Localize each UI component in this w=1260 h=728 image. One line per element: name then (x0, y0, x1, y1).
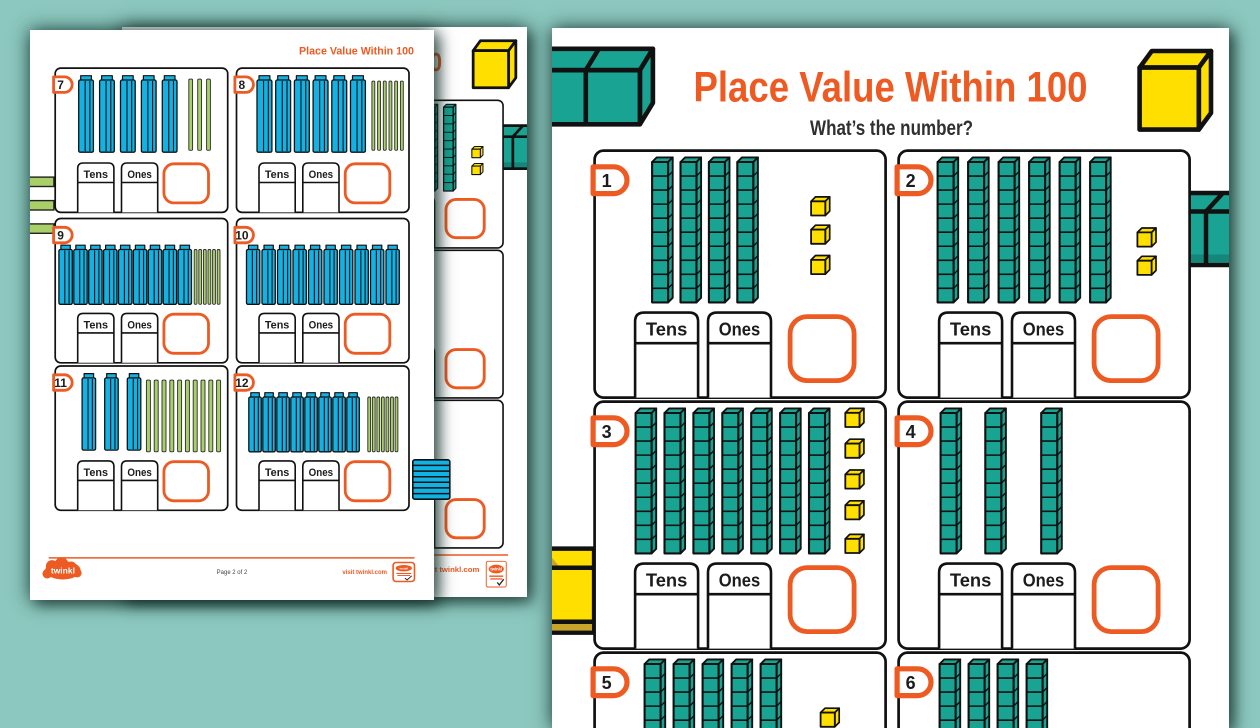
svg-text:Tens: Tens (646, 570, 688, 591)
svg-text:Ones: Ones (308, 319, 332, 331)
svg-text:Ones: Ones (127, 467, 151, 479)
svg-text:2: 2 (906, 171, 916, 191)
svg-text:Tens: Tens (950, 319, 992, 340)
svg-text:7: 7 (57, 78, 64, 92)
svg-text:11: 11 (54, 376, 67, 390)
svg-text:Tens: Tens (83, 319, 107, 331)
svg-text:Tens: Tens (83, 169, 107, 181)
svg-text:Place Value Within 100: Place Value Within 100 (694, 64, 1088, 112)
svg-text:1: 1 (602, 171, 612, 191)
svg-text:visit twinkl.com: visit twinkl.com (342, 570, 387, 576)
svg-text:Ones: Ones (308, 169, 332, 181)
svg-text:12: 12 (235, 376, 249, 390)
svg-text:3: 3 (602, 422, 612, 442)
svg-text:Ones: Ones (127, 319, 151, 331)
svg-text:Page 2 of 2: Page 2 of 2 (216, 570, 247, 576)
svg-text:Ones: Ones (1023, 319, 1065, 340)
svg-text:Place Value Within 100: Place Value Within 100 (299, 45, 414, 57)
svg-text:9: 9 (57, 228, 64, 242)
svg-text:Tens: Tens (83, 467, 107, 479)
svg-text:5: 5 (602, 673, 612, 693)
svg-text:twinkl: twinkl (51, 565, 75, 575)
svg-text:8: 8 (238, 78, 245, 92)
svg-text:10: 10 (235, 228, 249, 242)
svg-text:Tens: Tens (950, 570, 992, 591)
svg-text:6: 6 (906, 673, 916, 693)
svg-text:Tens: Tens (265, 319, 289, 331)
svg-text:Tens: Tens (646, 319, 688, 340)
svg-text:twinkl: twinkl (491, 567, 503, 572)
svg-text:Ones: Ones (308, 467, 332, 479)
svg-text:Ones: Ones (719, 319, 761, 340)
svg-text:What’s the number?: What’s the number? (810, 117, 973, 140)
svg-text:Ones: Ones (1023, 570, 1065, 591)
svg-text:Tens: Tens (265, 169, 289, 181)
svg-text:4: 4 (906, 422, 916, 442)
svg-text:Ones: Ones (719, 570, 761, 591)
svg-text:Ones: Ones (127, 169, 151, 181)
svg-text:Tens: Tens (265, 467, 289, 479)
svg-text:twinkl: twinkl (399, 566, 408, 570)
